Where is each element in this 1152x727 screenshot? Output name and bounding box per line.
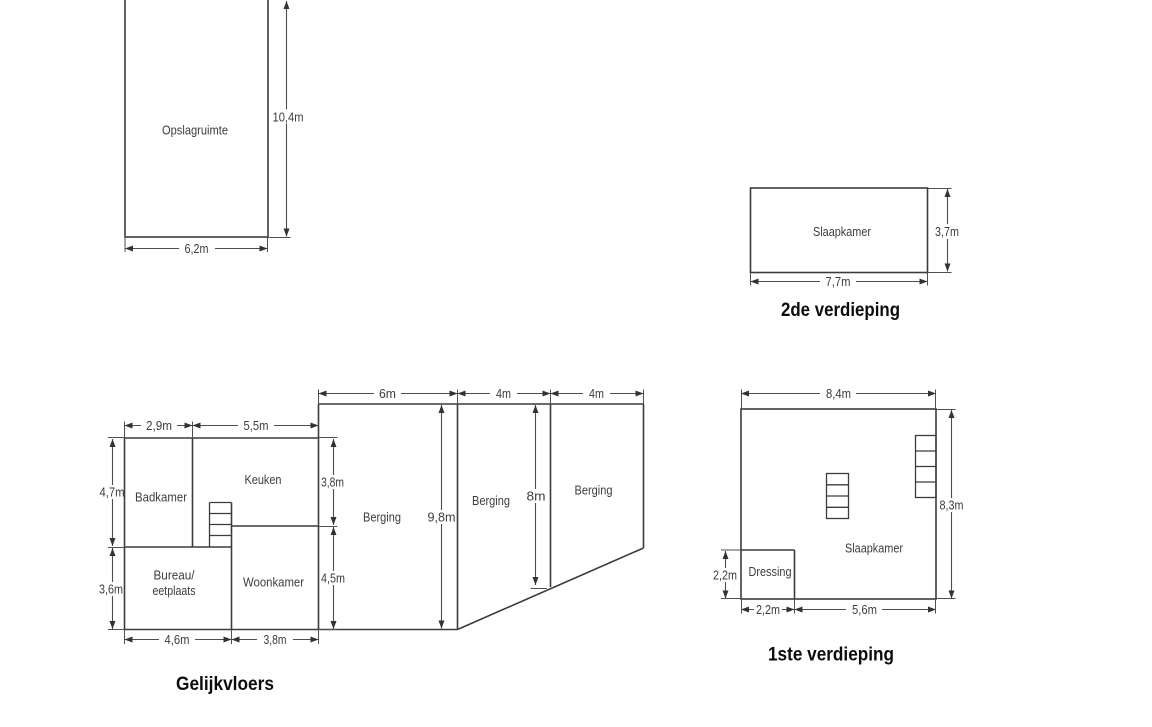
svg-text:6,2m: 6,2m <box>185 241 209 256</box>
svg-text:Gelijkvloers: Gelijkvloers <box>176 674 274 695</box>
svg-text:4,7m: 4,7m <box>100 485 125 500</box>
svg-text:5,6m: 5,6m <box>852 602 877 617</box>
svg-text:Berging: Berging <box>575 483 613 498</box>
svg-text:Woonkamer: Woonkamer <box>243 575 305 590</box>
svg-text:3,8m: 3,8m <box>264 632 287 647</box>
svg-text:8,3m: 8,3m <box>940 498 964 513</box>
svg-text:Badkamer: Badkamer <box>135 490 188 505</box>
svg-text:1ste verdieping: 1ste verdieping <box>768 645 894 666</box>
svg-text:3,8m: 3,8m <box>321 475 344 490</box>
svg-text:eetplaats: eetplaats <box>153 583 196 598</box>
svg-text:Slaapkamer: Slaapkamer <box>813 224 872 239</box>
svg-text:8,4m: 8,4m <box>826 386 851 401</box>
svg-text:3,7m: 3,7m <box>935 224 959 239</box>
svg-text:10,4m: 10,4m <box>273 110 304 125</box>
svg-text:Bureau/: Bureau/ <box>154 568 195 583</box>
svg-text:8m: 8m <box>527 489 546 504</box>
svg-text:2de verdieping: 2de verdieping <box>781 300 900 321</box>
svg-text:Slaapkamer: Slaapkamer <box>845 541 904 556</box>
svg-text:4,6m: 4,6m <box>165 632 190 647</box>
svg-text:Opslagruimte: Opslagruimte <box>162 123 228 138</box>
svg-text:2,9m: 2,9m <box>146 418 172 433</box>
svg-text:Keuken: Keuken <box>245 472 282 487</box>
svg-text:2,2m: 2,2m <box>713 568 737 583</box>
svg-text:Dressing: Dressing <box>749 564 792 579</box>
svg-text:Berging: Berging <box>363 510 401 525</box>
svg-text:6m: 6m <box>379 386 396 401</box>
svg-text:4,5m: 4,5m <box>321 571 345 586</box>
svg-text:4m: 4m <box>496 386 511 401</box>
svg-text:4m: 4m <box>589 386 604 401</box>
svg-text:7,7m: 7,7m <box>826 274 851 289</box>
svg-text:3,6m: 3,6m <box>99 582 123 597</box>
svg-text:Berging: Berging <box>472 493 510 508</box>
svg-text:9,8m: 9,8m <box>428 510 456 525</box>
svg-text:2,2m: 2,2m <box>756 602 780 617</box>
svg-text:5,5m: 5,5m <box>244 418 269 433</box>
